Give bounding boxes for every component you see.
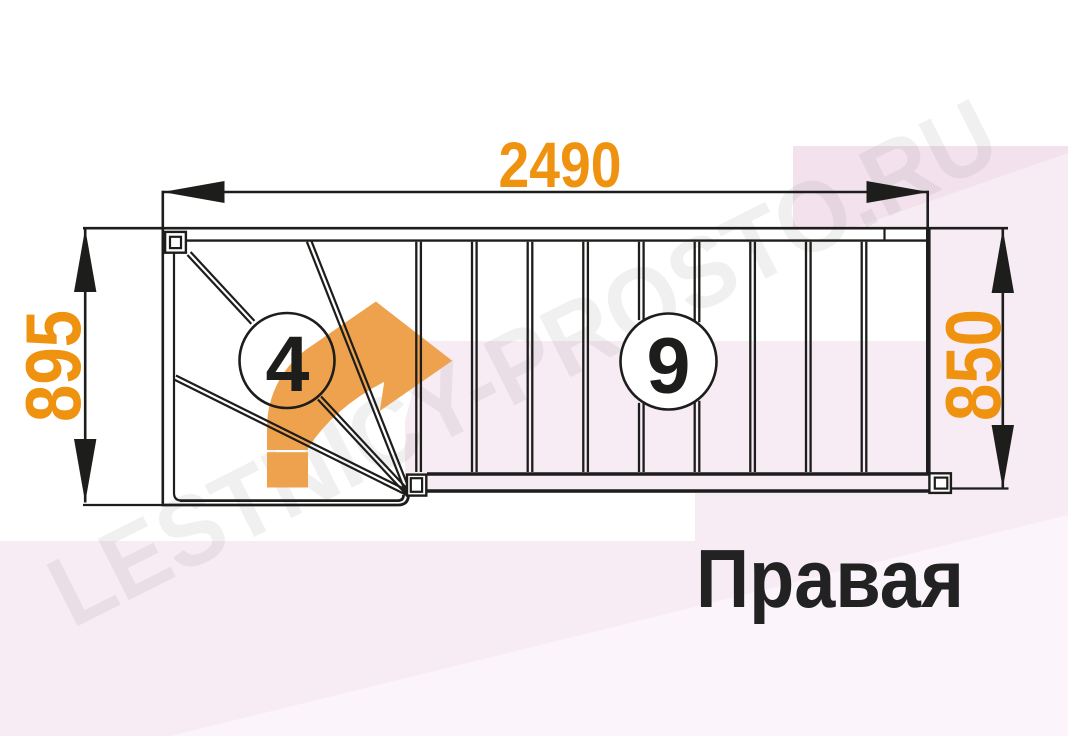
svg-text:9: 9 <box>647 321 691 410</box>
svg-text:Правая: Правая <box>696 532 964 625</box>
svg-text:850: 850 <box>929 309 1017 421</box>
svg-text:895: 895 <box>9 310 97 422</box>
svg-text:4: 4 <box>266 319 310 408</box>
svg-text:2490: 2490 <box>499 129 622 201</box>
